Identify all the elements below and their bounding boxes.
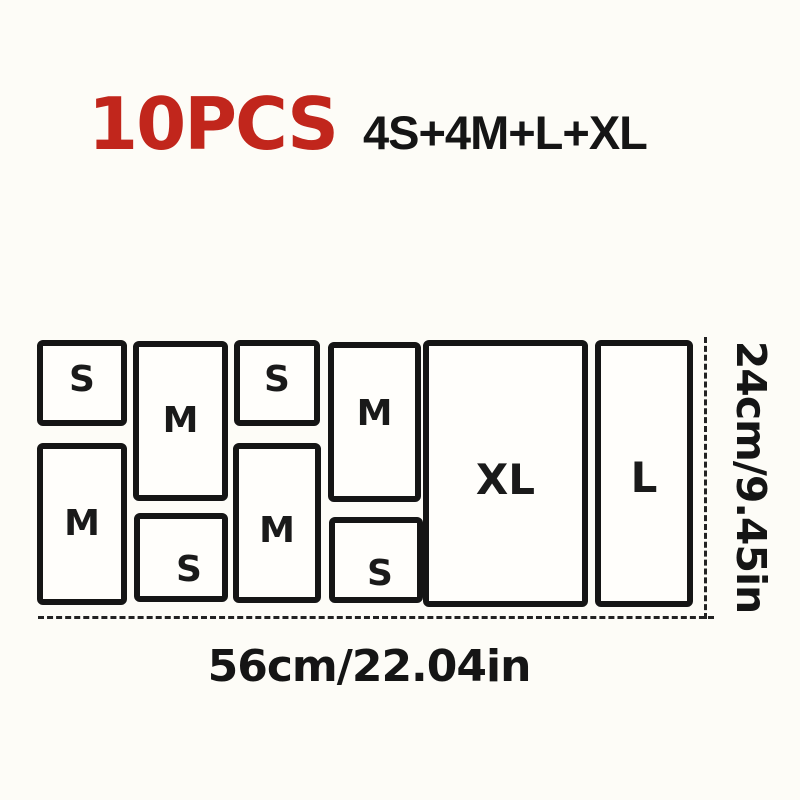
compartment-size-label: L bbox=[631, 457, 658, 499]
compartment-7-medium: M bbox=[233, 443, 321, 603]
compartment-size-label: S bbox=[367, 556, 393, 592]
compartment-size-label: M bbox=[163, 403, 199, 439]
width-dimension-dashed-line bbox=[38, 616, 714, 619]
compartment-1-small: S bbox=[37, 340, 127, 426]
compartment-3-small: S bbox=[234, 340, 320, 426]
compartment-size-label: M bbox=[64, 506, 100, 542]
compartment-6-small: S bbox=[134, 513, 228, 602]
height-dimension-label: 24cm/9.45in bbox=[722, 337, 780, 617]
compartment-9-extra-large: XL bbox=[423, 340, 588, 607]
compartment-10-large: L bbox=[595, 340, 693, 607]
compartment-size-label: M bbox=[259, 513, 295, 549]
compartment-size-label: S bbox=[176, 552, 202, 588]
compartment-2-medium: M bbox=[133, 341, 228, 501]
width-dimension-label: 56cm/22.04in bbox=[169, 641, 569, 692]
compartment-size-label: XL bbox=[476, 459, 535, 501]
compartment-8-small: S bbox=[329, 517, 423, 603]
height-dimension-dashed-line bbox=[704, 337, 707, 619]
compartment-size-label: S bbox=[69, 362, 95, 398]
storage-set-layout-diagram: S M S M M S M S XL L 24cm/9.45in 56cm/22… bbox=[0, 0, 800, 800]
compartment-5-medium: M bbox=[37, 443, 127, 605]
compartment-size-label: M bbox=[357, 396, 393, 432]
compartment-size-label: S bbox=[264, 362, 290, 398]
compartment-4-medium: M bbox=[328, 342, 421, 502]
